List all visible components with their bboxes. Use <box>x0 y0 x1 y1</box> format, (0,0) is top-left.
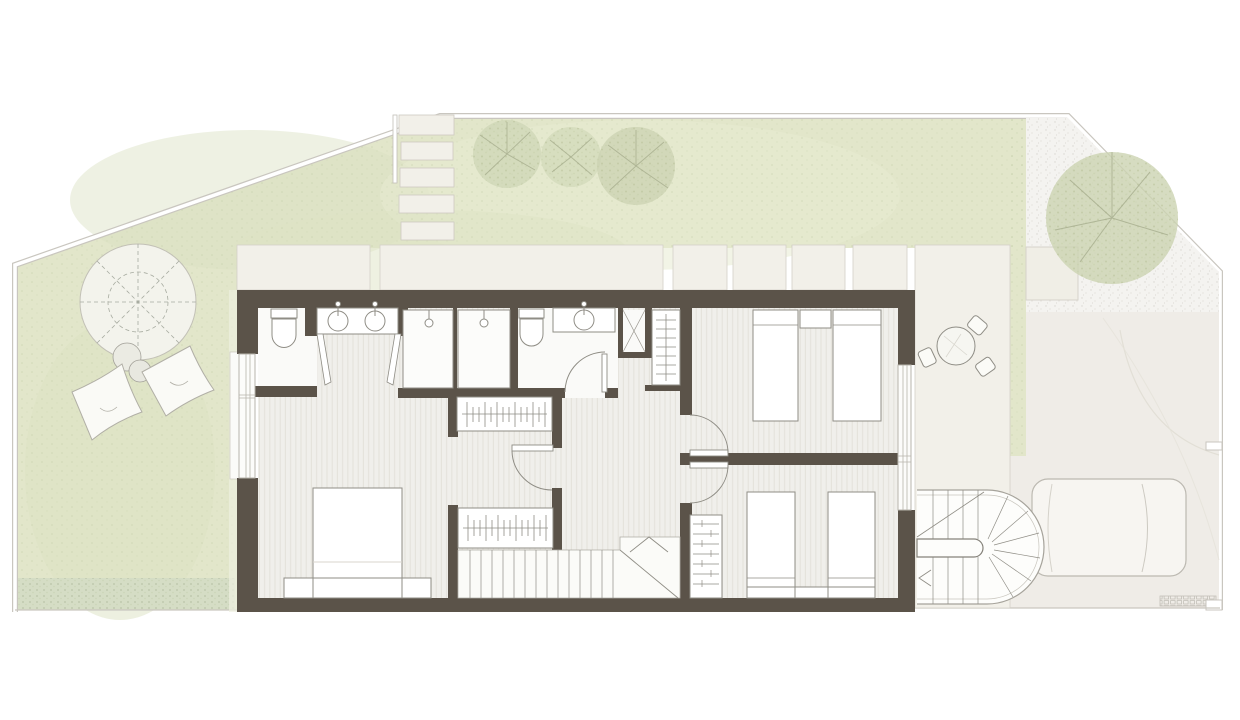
lawn-strip-texture <box>1008 116 1028 458</box>
bed-single <box>747 492 795 587</box>
door-leaf <box>690 462 728 468</box>
terrace-paver <box>673 245 727 290</box>
wall-corridor-upper <box>680 308 692 415</box>
wall-shower-cabin <box>618 352 652 358</box>
nightstand <box>800 310 831 328</box>
window-left <box>239 354 255 478</box>
car <box>1032 479 1186 576</box>
toilet-bowl <box>520 319 543 346</box>
bed-headboard <box>828 587 875 598</box>
bed-single <box>828 492 875 587</box>
terrace-paver <box>792 245 845 290</box>
toilet-tank <box>519 309 544 318</box>
door-leaf <box>602 354 607 392</box>
wall-partition <box>305 308 317 336</box>
wall-wardrobe-post <box>448 505 458 598</box>
gate-post <box>1206 442 1222 450</box>
terrace-paver <box>237 245 370 290</box>
window-right <box>898 365 911 510</box>
toilet-bowl <box>272 319 296 348</box>
terrace-paver <box>733 245 786 290</box>
terrace-paver <box>853 245 907 290</box>
wall-master-doorframe <box>552 390 562 448</box>
wall-right-upper <box>898 290 915 365</box>
shower-head <box>425 319 433 327</box>
sink-tap-head <box>336 302 341 307</box>
shapes-root <box>0 0 1240 720</box>
wall-bottom <box>237 598 915 612</box>
sink-tap-head <box>373 302 378 307</box>
stepping-stone <box>400 168 454 187</box>
nightstand <box>795 587 828 598</box>
wall-closet-south <box>645 385 680 391</box>
stepping-stone <box>401 142 453 160</box>
bed-double <box>313 488 402 578</box>
bed-headboard <box>402 578 431 598</box>
stepping-stone <box>399 115 454 135</box>
stepping-stone <box>401 222 454 240</box>
bed-headboard <box>747 587 795 598</box>
wall-right-lower <box>898 510 915 612</box>
sink-tap-head <box>582 302 587 307</box>
wall-shower-cabin <box>645 308 652 358</box>
wall-shower-divider <box>453 308 457 390</box>
floor-plan-canvas <box>0 0 1240 720</box>
wall-below-wc <box>248 386 317 397</box>
shrub-bed-texture <box>16 578 235 610</box>
window-sill-outer <box>230 352 239 479</box>
parasol-spokes <box>80 244 196 360</box>
stepping-stone <box>399 195 454 213</box>
bed-headboard <box>284 578 313 598</box>
door-leaf <box>690 450 728 456</box>
wall-left-lower <box>237 478 258 612</box>
bed-headboard <box>313 578 402 598</box>
toilet-tank <box>271 309 297 318</box>
door-leaf <box>512 445 553 451</box>
shelf-unit <box>690 515 722 598</box>
terrace-paver <box>380 245 663 290</box>
wall-shower-cabin <box>618 308 623 358</box>
path-fence <box>393 115 397 183</box>
shower-head <box>480 319 488 327</box>
wall-left-upper <box>237 290 258 354</box>
spiral-stair-core <box>917 539 983 557</box>
floor-plan-drawing <box>0 0 1240 720</box>
wall-partition <box>510 308 518 398</box>
bed-single <box>833 310 881 421</box>
bed-single <box>753 310 798 421</box>
